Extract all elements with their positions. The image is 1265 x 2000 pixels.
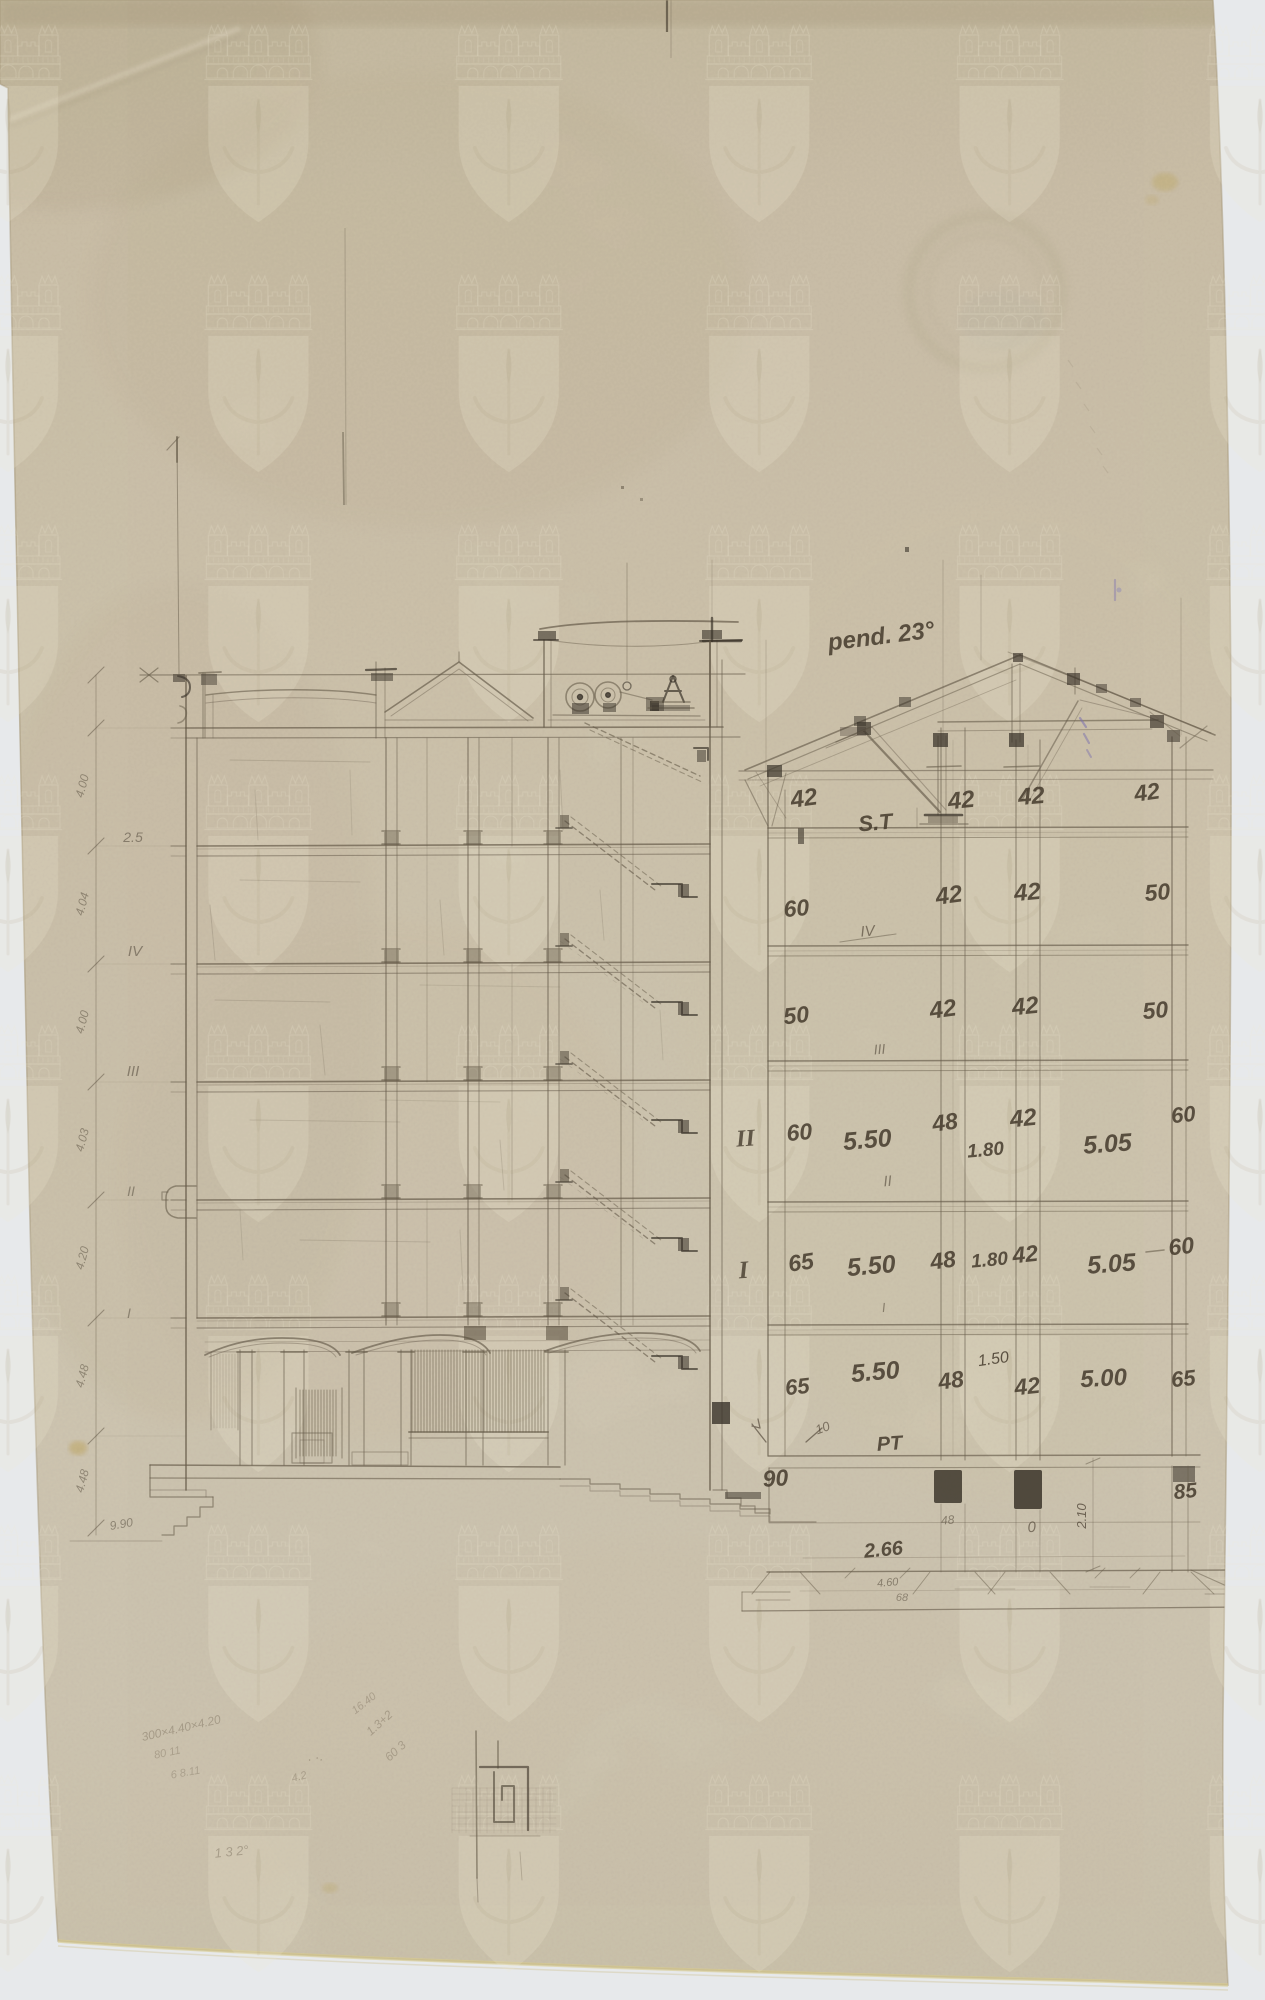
svg-text:60: 60	[1167, 1232, 1195, 1261]
svg-text:III: III	[127, 1063, 140, 1080]
svg-text:42: 42	[1016, 782, 1047, 811]
svg-text:65: 65	[786, 1247, 816, 1276]
svg-text:42: 42	[788, 783, 820, 814]
svg-text:II: II	[734, 1125, 757, 1152]
svg-text:42: 42	[1012, 878, 1043, 907]
svg-text:S.T: S.T	[857, 808, 895, 836]
svg-text:PT: PT	[876, 1432, 905, 1456]
svg-text:2.66: 2.66	[862, 1537, 905, 1562]
svg-text:42: 42	[927, 994, 959, 1025]
svg-text:42: 42	[946, 786, 977, 816]
svg-text:I: I	[127, 1305, 131, 1321]
svg-text:42: 42	[1008, 1104, 1039, 1134]
svg-text:50: 50	[1143, 878, 1171, 906]
svg-text:5.50: 5.50	[850, 1356, 901, 1388]
svg-text:5.05: 5.05	[1082, 1128, 1134, 1159]
svg-text:48: 48	[927, 1245, 957, 1274]
svg-text:65: 65	[784, 1373, 812, 1401]
svg-text:4.60: 4.60	[877, 1576, 900, 1590]
svg-text:2.5: 2.5	[122, 829, 143, 845]
svg-text:5.05: 5.05	[1086, 1248, 1138, 1279]
svg-text:5.50: 5.50	[846, 1250, 897, 1282]
svg-text:42: 42	[1131, 777, 1161, 806]
svg-text:5.00: 5.00	[1080, 1364, 1129, 1393]
svg-text:68: 68	[896, 1592, 909, 1604]
svg-text:II: II	[883, 1173, 893, 1191]
svg-text:65: 65	[1170, 1365, 1198, 1393]
svg-text:2.10: 2.10	[1074, 1503, 1089, 1530]
svg-text:II: II	[127, 1183, 135, 1199]
svg-text:42: 42	[933, 880, 965, 911]
svg-text:60: 60	[782, 894, 810, 922]
svg-text:42: 42	[1010, 992, 1041, 1022]
svg-text:1.80: 1.80	[966, 1138, 1005, 1162]
svg-text:48: 48	[940, 1512, 955, 1527]
svg-text:42: 42	[1010, 1240, 1039, 1269]
svg-text:50: 50	[1141, 996, 1169, 1024]
svg-text:5.50: 5.50	[842, 1124, 893, 1156]
svg-text:60: 60	[785, 1118, 813, 1146]
svg-text:1.80: 1.80	[970, 1248, 1009, 1272]
svg-text:90: 90	[762, 1464, 790, 1492]
svg-text:III: III	[873, 1041, 886, 1058]
svg-text:85: 85	[1173, 1479, 1199, 1504]
svg-text:48: 48	[929, 1107, 959, 1136]
svg-text:42: 42	[1012, 1372, 1041, 1401]
svg-text:IV: IV	[128, 943, 144, 960]
svg-text:50: 50	[782, 1001, 810, 1030]
svg-text:60: 60	[1170, 1101, 1198, 1129]
svg-text:48: 48	[935, 1365, 965, 1394]
